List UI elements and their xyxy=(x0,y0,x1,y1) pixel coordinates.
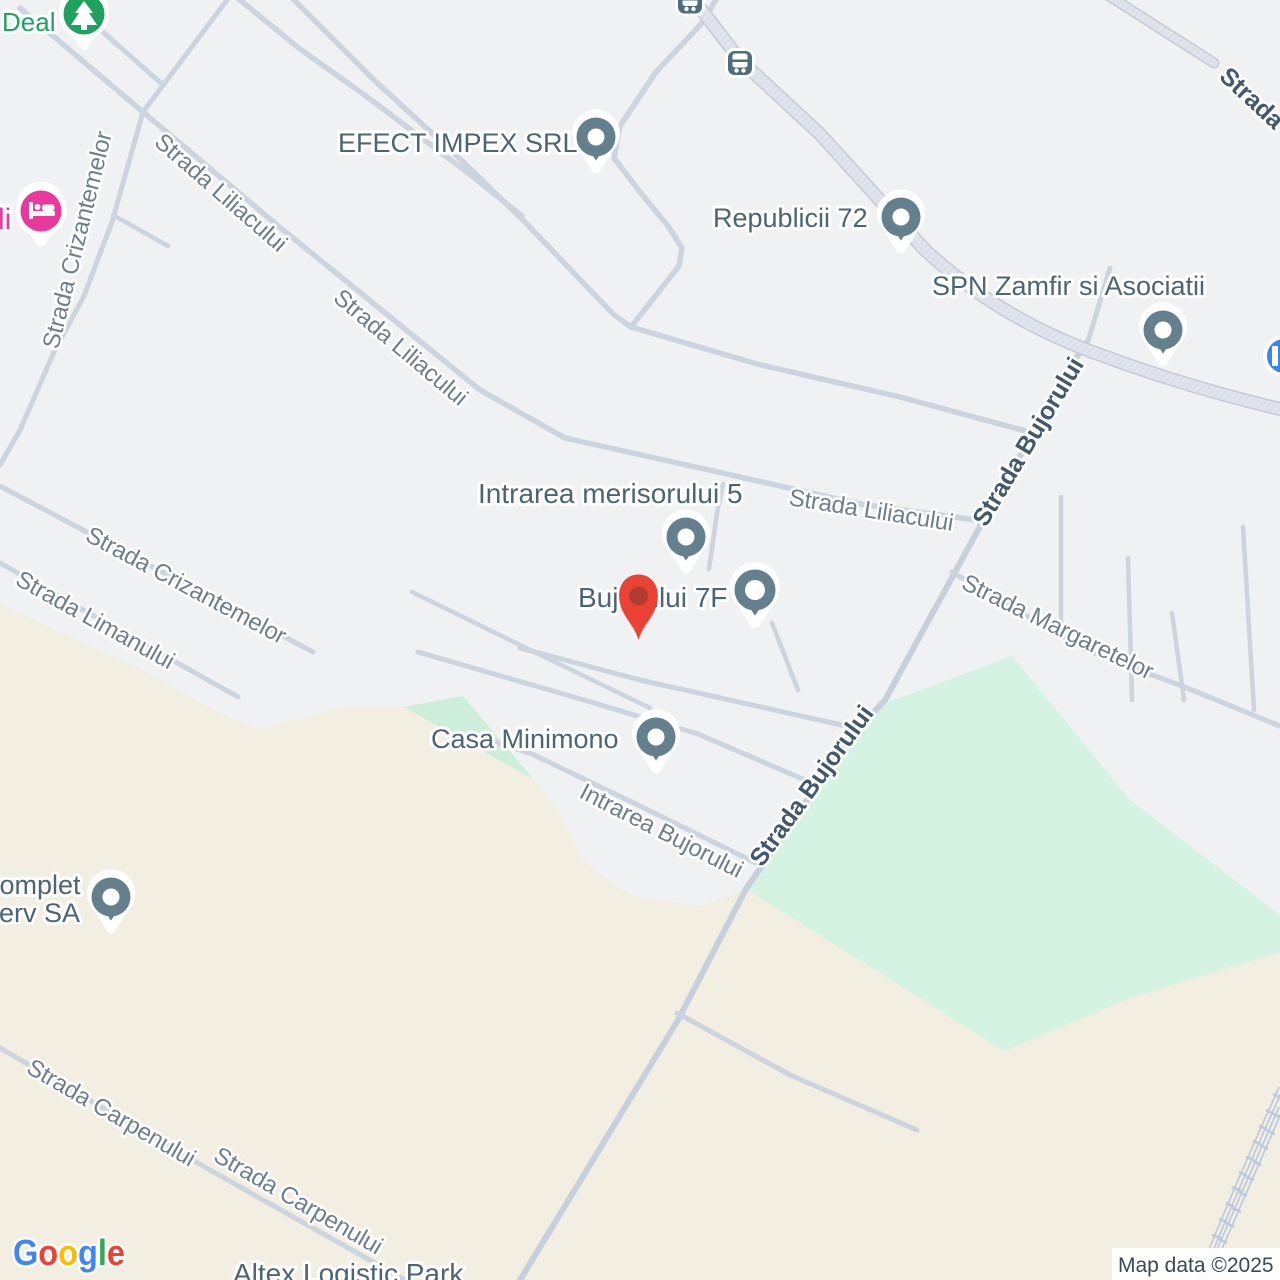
svg-text:Deal: Deal xyxy=(2,7,55,37)
svg-text:Complet: Complet xyxy=(0,870,81,900)
svg-text:Casa Minimono: Casa Minimono xyxy=(431,724,619,754)
svg-text:li: li xyxy=(0,203,11,236)
svg-text:Serv SA: Serv SA xyxy=(0,898,80,928)
svg-text:Republicii 72: Republicii 72 xyxy=(713,203,868,233)
svg-text:SPN Zamfir si Asociatii: SPN Zamfir si Asociatii xyxy=(932,271,1205,301)
svg-text:Map data ©2025: Map data ©2025 xyxy=(1118,1254,1274,1277)
svg-text:Google: Google xyxy=(13,1232,125,1273)
svg-text:Intrarea merisorului 5: Intrarea merisorului 5 xyxy=(478,478,743,509)
svg-text:EFECT IMPEX SRL: EFECT IMPEX SRL xyxy=(338,128,578,158)
svg-text:Altex Logistic Park: Altex Logistic Park xyxy=(233,1258,464,1280)
